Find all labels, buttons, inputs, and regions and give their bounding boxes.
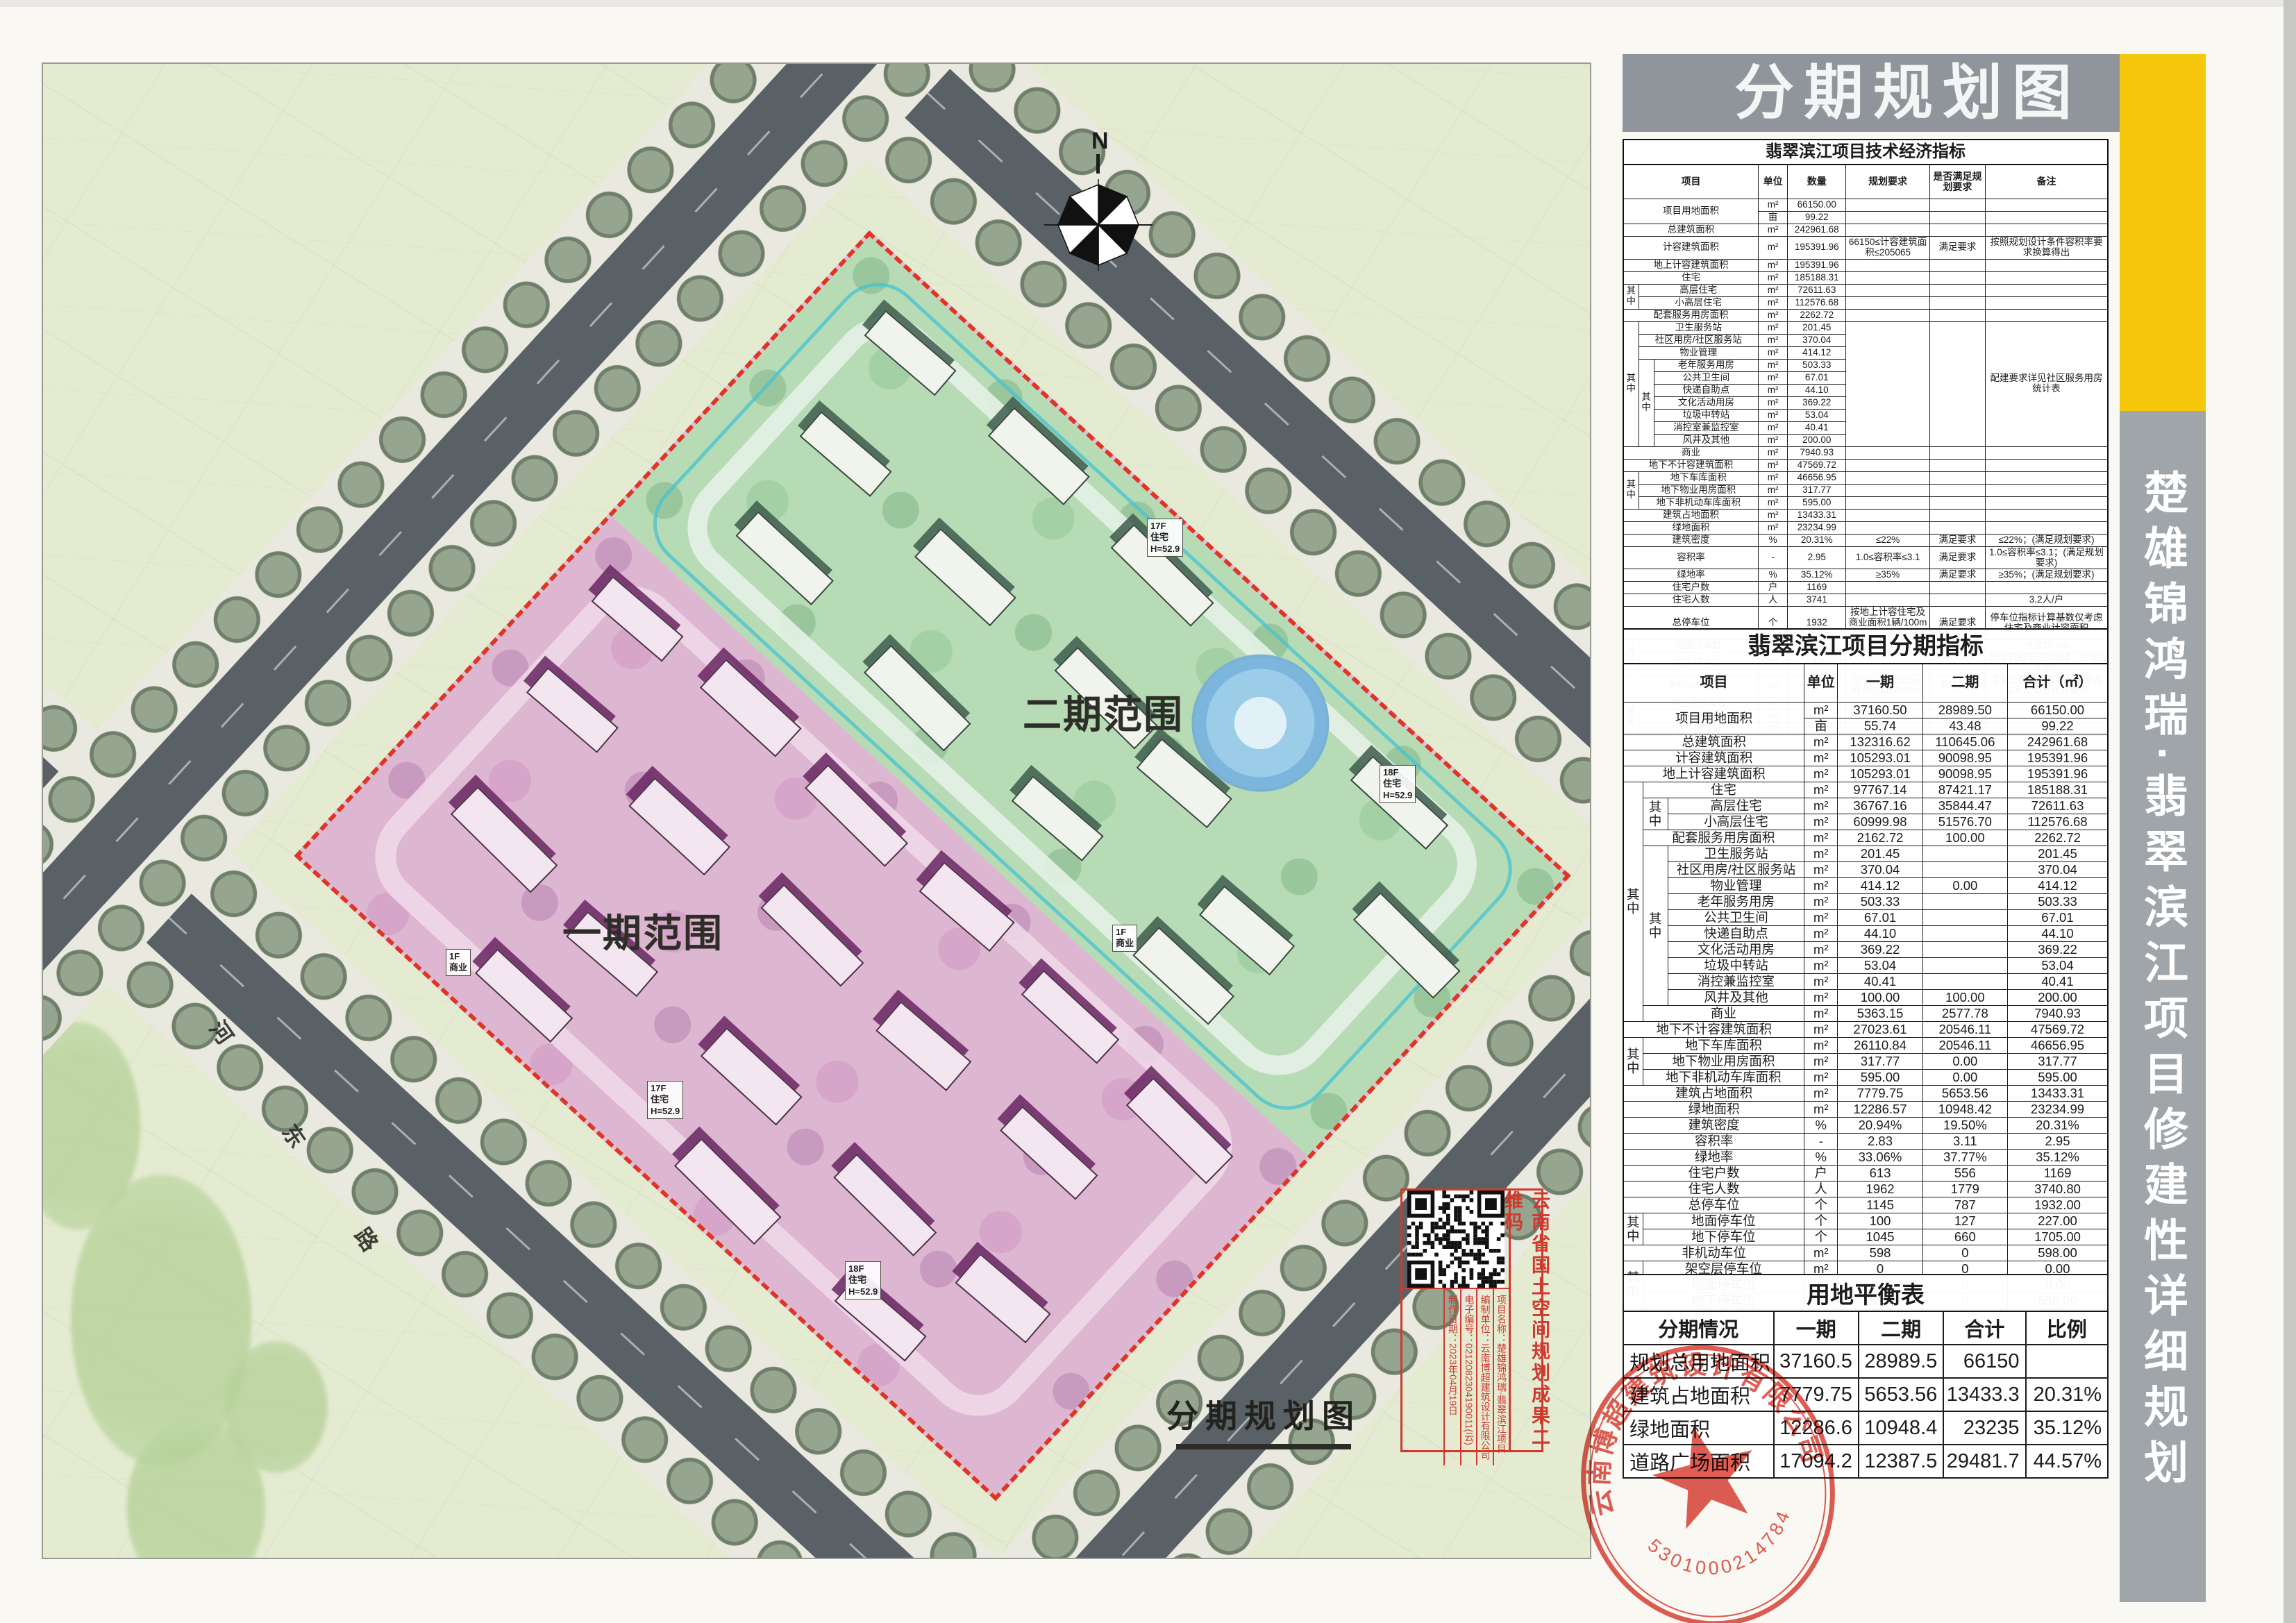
table-cell: 社区用房/社区服务站 (1639, 334, 1758, 346)
table-cell: 35.12% (2008, 1150, 2109, 1166)
table-cell (1929, 594, 1985, 607)
table-cell (1985, 296, 2108, 309)
table-cell: 配套服务用房面积 (1623, 309, 1759, 321)
table-cell: m² (1759, 484, 1788, 496)
table-cell: m² (1759, 309, 1788, 321)
table-cell: 1705.00 (2008, 1229, 2109, 1245)
table-cell: m² (1759, 421, 1788, 434)
table-cell: 个 (1804, 1229, 1838, 1245)
table-cell: 201.45 (1788, 321, 1846, 334)
phase2-label: 二期范围 (1023, 684, 1184, 740)
table-cell: m² (1759, 521, 1788, 534)
table-cell: 242961.68 (1788, 224, 1846, 237)
table-cell: m² (1759, 371, 1788, 384)
table-cell (1846, 296, 1929, 309)
table-cell: 7940.93 (1788, 446, 1846, 459)
table-cell: 配建要求详见社区服务用房统计表 (1985, 321, 2108, 446)
table-cell: m² (1804, 782, 1838, 798)
table-cell: 414.12 (1788, 346, 1846, 359)
table-cell: 数量 (1788, 165, 1846, 199)
table-cell: 660 (1922, 1229, 2007, 1245)
table-cell: 绿地面积 (1623, 1102, 1804, 1118)
qr-stamp-title: 云南省国土空间规划成果二维码 (1509, 1191, 1541, 1450)
table-cell: 195391.96 (2008, 750, 2109, 766)
table-cell: m² (1804, 878, 1838, 894)
table-cell: m² (1759, 446, 1788, 459)
table-cell: 绿地面积 (1623, 521, 1759, 534)
table-cell: m² (1759, 199, 1788, 212)
table-cell: 55.74 (1838, 718, 1922, 734)
page-title-bar: 分期规划图 (1623, 54, 2120, 132)
table-cell (1929, 509, 1985, 521)
building-label: 18F 住宅 H=52.9 (1380, 765, 1416, 803)
table-cell: 住宅 (1623, 271, 1759, 284)
table-cell (1846, 309, 1929, 321)
table-cell: m² (1804, 798, 1838, 814)
table-cell: 快递自助点 (1654, 384, 1758, 396)
table-cell (1846, 594, 1929, 607)
table-cell: 35844.47 (1922, 798, 2007, 814)
table-cell: 地面停车位 (1643, 1213, 1804, 1229)
table-cell: 53.04 (1788, 409, 1846, 421)
table-cell: 2162.72 (1838, 830, 1922, 846)
table-cell: ≥35%；(满足规划要求) (1985, 569, 2108, 582)
phasing-indicators-table: 翡翠滨江项目分期指标项目单位一期二期合计（㎡）项目用地面积m²37160.502… (1623, 628, 2109, 1310)
table-cell: 595.00 (2008, 1070, 2109, 1086)
table-cell (1846, 284, 1929, 296)
table-cell: 36767.16 (1838, 798, 1922, 814)
table-cell: m² (1759, 259, 1788, 271)
table-cell: 总建筑面积 (1623, 734, 1804, 750)
table-cell: 242961.68 (2008, 734, 2109, 750)
table-cell: m² (1759, 434, 1788, 446)
table-cell: 35.12% (1788, 569, 1846, 582)
table-cell: 185188.31 (1788, 271, 1846, 284)
table-cell: 满足要求 (1929, 237, 1985, 260)
table-cell: 112576.68 (2008, 814, 2109, 830)
qr-field-agency: 编制单位：云南博超建筑设计有限公司 (1476, 1289, 1492, 1465)
table-cell: 90098.95 (1922, 766, 2007, 782)
table-cell: 46656.95 (1788, 471, 1846, 484)
table-cell: m² (1804, 1070, 1838, 1086)
table-cell: 595.00 (1788, 496, 1846, 509)
table-cell: 23235 (1943, 1411, 2025, 1445)
table-cell: 小高层住宅 (1639, 296, 1758, 309)
table-cell: 物业管理 (1668, 878, 1804, 894)
table-cell: 40.41 (1788, 421, 1846, 434)
table-cell: 13433.31 (2008, 1086, 2109, 1102)
table-cell: 1145 (1838, 1197, 1922, 1213)
qr-stamp: 项目名称：楚雄锦鸿瑞·翡翠滨江项目 编制单位：云南博超建筑设计有限公司 电子编号… (1400, 1188, 1543, 1452)
table-cell: 住宅人数 (1623, 594, 1759, 607)
table-cell: 195391.96 (1788, 237, 1846, 260)
side-title-strip: 楚雄锦鸿瑞·翡翠滨江项目修建性详细规划 (2120, 411, 2206, 1602)
table-cell: 文化活动用房 (1668, 942, 1804, 958)
table-cell: 20.94% (1838, 1118, 1922, 1134)
table-cell: 地上计容建筑面积 (1623, 766, 1804, 782)
table-cell: 2.95 (2008, 1134, 2109, 1150)
table-cell (1985, 199, 2108, 212)
table-cell: m² (1804, 814, 1838, 830)
table-cell: m² (1804, 1022, 1838, 1038)
table-cell (1929, 496, 1985, 509)
table-cell: 90098.95 (1922, 750, 2007, 766)
table-cell: 项目 (1623, 664, 1804, 703)
table-cell: 项目用地面积 (1623, 703, 1804, 734)
table-cell (1846, 199, 1929, 212)
table-cell: 按照规划设计条件容积率要求换算得出 (1985, 237, 2108, 260)
table-cell: 66150≤计容建筑面积≤205065 (1846, 237, 1929, 260)
table-cell (1922, 926, 2007, 942)
table-cell (1922, 910, 2007, 926)
table-cell: 0 (1922, 1245, 2007, 1261)
table-cell: 13433.3 (1943, 1378, 2025, 1411)
table-cell: 7940.93 (2008, 1006, 2109, 1022)
table-cell (1846, 271, 1929, 284)
caption-underline (1176, 1444, 1351, 1449)
table-cell (1929, 199, 1985, 212)
table-cell: 地下物业用房面积 (1643, 1054, 1804, 1070)
table-cell (1985, 484, 2108, 496)
table-cell: 28989.50 (1922, 703, 2007, 718)
table-cell (1985, 471, 2108, 484)
table-cell: 规划要求 (1846, 165, 1929, 199)
table-cell: 文化活动用房 (1654, 396, 1758, 409)
table-cell: 44.10 (1838, 926, 1922, 942)
table-cell: m² (1804, 1006, 1838, 1022)
table-cell (1929, 446, 1985, 459)
table-cell: 满足要求 (1929, 569, 1985, 582)
table-cell: 物业管理 (1639, 346, 1758, 359)
table-cell: 44.10 (1788, 384, 1846, 396)
table-cell: m² (1804, 703, 1838, 718)
table-cell (1985, 582, 2108, 594)
table-cell (1985, 459, 2108, 471)
table-cell: 公共卫生间 (1654, 371, 1758, 384)
table-cell: 其中 (1639, 359, 1654, 446)
table-cell (1922, 958, 2007, 974)
table-cell (1846, 484, 1929, 496)
table-cell: 小高层住宅 (1668, 814, 1804, 830)
table-cell: 33.06% (1838, 1150, 1922, 1166)
table-cell: 计容建筑面积 (1623, 237, 1759, 260)
table-cell: 消控兼监控室 (1668, 974, 1804, 990)
table-cell: 19.50% (1922, 1118, 2007, 1134)
table-cell: 亩 (1804, 718, 1838, 734)
table-cell: ≤22%；(满足规划要求) (1985, 534, 2108, 546)
building-label: 1F 商业 (446, 949, 471, 976)
building-label: 1F 商业 (1112, 925, 1137, 952)
table-cell (1929, 271, 1985, 284)
park-green (224, 1341, 328, 1473)
table-cell: m² (1804, 862, 1838, 878)
table-cell: 317.77 (1788, 484, 1846, 496)
table-cell: 其中 (1643, 846, 1668, 1006)
table-cell: 87421.17 (1922, 782, 2007, 798)
table-cell: 26110.84 (1838, 1038, 1922, 1054)
table-cell: 10948.4 (1859, 1411, 1943, 1445)
table-cell: 132316.62 (1838, 734, 1922, 750)
table-cell: 100 (1838, 1213, 1922, 1229)
table-cell: ≤22% (1846, 534, 1929, 546)
north-label: N (1091, 128, 1109, 154)
table-cell: 卫生服务站 (1639, 321, 1758, 334)
qr-code (1402, 1191, 1509, 1289)
table-cell: m² (1759, 396, 1788, 409)
table-cell: 1169 (1788, 582, 1846, 594)
table-cell (1929, 309, 1985, 321)
table-cell: 风井及其他 (1668, 990, 1804, 1006)
table-cell (1929, 284, 1985, 296)
table-cell: 项目用地面积 (1623, 199, 1759, 224)
table-cell: 598 (1838, 1245, 1922, 1261)
table-cell: 1.0≤容积率≤3.1；(满足规划要求) (1985, 546, 2108, 569)
table-cell: 317.77 (1838, 1054, 1922, 1070)
table-cell: 高层住宅 (1639, 284, 1758, 296)
table-cell: m² (1804, 990, 1838, 1006)
table-cell: 369.22 (2008, 942, 2109, 958)
table-cell: m² (1759, 237, 1788, 260)
table-cell: 消控室兼监控室 (1654, 421, 1758, 434)
table-cell: m² (1804, 974, 1838, 990)
table-cell (1985, 284, 2108, 296)
table-cell: 其中 (1623, 471, 1639, 509)
table-cell: 35.12% (2026, 1411, 2108, 1445)
table-cell (1929, 321, 1985, 446)
table-cell: 容积率 (1623, 1134, 1804, 1150)
table-cell: 40.41 (1838, 974, 1922, 990)
table-cell: 0.00 (1922, 1070, 2007, 1086)
table-cell (1922, 846, 2007, 862)
table-cell (2026, 1345, 2108, 1378)
table-cell: 满足要求 (1929, 534, 1985, 546)
table-cell: 1779 (1922, 1181, 2007, 1197)
map-caption-text: 分期规划图 (1166, 1391, 1361, 1437)
table-cell: 3.2人/户 (1985, 594, 2108, 607)
qr-field-number: 电子编号：0212082304190011(云) (1460, 1289, 1476, 1465)
table-cell: 10948.42 (1922, 1102, 2007, 1118)
table-cell: m² (1804, 1038, 1838, 1054)
table-cell: 地下不计容建筑面积 (1623, 459, 1759, 471)
table-cell: 127 (1922, 1213, 2007, 1229)
table-cell: % (1804, 1118, 1838, 1134)
table-cell: 地下物业用房面积 (1639, 484, 1758, 496)
table-cell: m² (1804, 766, 1838, 782)
table-cell: m² (1804, 910, 1838, 926)
table-cell (1846, 321, 1929, 446)
table-cell: 12286.57 (1838, 1102, 1922, 1118)
table-cell: 67.01 (1838, 910, 1922, 926)
table-cell: 5653.56 (1922, 1086, 2007, 1102)
table-cell: 二期 (1922, 664, 2007, 703)
table-cell: 556 (1922, 1166, 2007, 1181)
table-cell: 53.04 (1838, 958, 1922, 974)
table-cell: 0.00 (1922, 878, 2007, 894)
table-cell (1929, 471, 1985, 484)
table-cell: 其中 (1623, 321, 1639, 446)
table-cell: 住宅户数 (1623, 582, 1759, 594)
table-cell: 5363.15 (1838, 1006, 1922, 1022)
building-label: 17F 住宅 H=52.9 (1147, 519, 1183, 557)
table-cell: 地下非机动车库面积 (1643, 1070, 1804, 1086)
table-cell: 地下非机动车库面积 (1639, 496, 1758, 509)
side-title: 楚雄锦鸿瑞·翡翠滨江项目修建性详细规划 (2131, 469, 2195, 1552)
table-cell: 一期 (1838, 664, 1922, 703)
table-cell: m² (1804, 734, 1838, 750)
table-cell: 其中 (1623, 1213, 1643, 1245)
table-cell: m² (1804, 1086, 1838, 1102)
table-cell: 建筑密度 (1623, 534, 1759, 546)
table-cell (1929, 521, 1985, 534)
table-cell (1922, 942, 2007, 958)
table-cell: 容积率 (1623, 546, 1759, 569)
table-cell: 个 (1804, 1197, 1838, 1213)
table-cell: 503.33 (1838, 894, 1922, 910)
table-cell: 满足要求 (1929, 546, 1985, 569)
table-cell: % (1759, 569, 1788, 582)
planning-sheet: N 一期范围 二期范围 河东路 分期规划图 (0, 0, 2296, 1623)
table-cell: m² (1804, 830, 1838, 846)
seal-star-icon (1643, 1414, 1767, 1534)
yellow-accent-strip (2120, 54, 2206, 411)
table-cell: 12387.5 (1859, 1445, 1943, 1478)
table-cell: 112576.68 (1788, 296, 1846, 309)
table-cell: 44.57% (2026, 1445, 2108, 1478)
table-cell (1922, 894, 2007, 910)
table-cell: 44.10 (2008, 926, 2109, 942)
table-cell: 翡翠滨江项目分期指标 (1623, 629, 2108, 664)
table-cell: 7779.75 (1838, 1086, 1922, 1102)
table-cell: 非机动车位 (1623, 1245, 1804, 1261)
table-cell: 47569.72 (2008, 1022, 2109, 1038)
table-cell: 317.77 (2008, 1054, 2109, 1070)
table-cell: m² (1804, 1245, 1838, 1261)
table-cell: 建筑占地面积 (1623, 509, 1759, 521)
table-cell: 人 (1759, 594, 1788, 607)
table-cell: 1962 (1838, 1181, 1922, 1197)
table-cell (1846, 509, 1929, 521)
table-cell: m² (1804, 926, 1838, 942)
table-cell: 垃圾中转站 (1654, 409, 1758, 421)
table-cell: 2.83 (1838, 1134, 1922, 1150)
table-cell: 绿地率 (1623, 1150, 1804, 1166)
table-cell: 369.22 (1788, 396, 1846, 409)
table-cell: m² (1759, 321, 1788, 334)
table-cell: 20.31% (1788, 534, 1846, 546)
table-cell (1929, 259, 1985, 271)
table-cell: 370.04 (1838, 862, 1922, 878)
table-cell (1929, 582, 1985, 594)
table-cell: 其中 (1623, 782, 1643, 1022)
table-cell: 29481.7 (1943, 1445, 2025, 1478)
table-cell: m² (1804, 750, 1838, 766)
table-cell: 个 (1804, 1213, 1838, 1229)
table-cell: 1932.00 (2008, 1197, 2109, 1213)
table-cell: 20546.11 (1922, 1022, 2007, 1038)
table-cell: 合计 (1943, 1311, 2025, 1345)
table-cell: m² (1804, 958, 1838, 974)
table-cell: 100.00 (1922, 830, 2007, 846)
table-cell (1985, 496, 2108, 509)
table-cell: 住宅户数 (1623, 1166, 1804, 1181)
table-cell: 66150.00 (2008, 703, 2109, 718)
table-cell: 13433.31 (1788, 509, 1846, 521)
table-cell: m² (1759, 334, 1788, 346)
table-cell: 1169 (2008, 1166, 2109, 1181)
table-cell: 其中 (1643, 798, 1668, 830)
scan-edge (2284, 0, 2296, 1623)
table-cell: 2262.72 (2008, 830, 2109, 846)
table-cell: 备注 (1985, 165, 2108, 199)
table-cell: 5653.56 (1859, 1378, 1943, 1411)
table-cell: 单位 (1759, 165, 1788, 199)
table-cell: 住宅 (1643, 782, 1804, 798)
table-cell: 53.04 (2008, 958, 2109, 974)
table-cell: m² (1804, 894, 1838, 910)
table-cell (1846, 582, 1929, 594)
table-cell: ≥35% (1846, 569, 1929, 582)
table-cell: 200.00 (2008, 990, 2109, 1006)
qr-fields: 项目名称：楚雄锦鸿瑞·翡翠滨江项目 编制单位：云南博超建筑设计有限公司 电子编号… (1402, 1289, 1509, 1465)
building-label: 18F 住宅 H=52.9 (845, 1261, 881, 1300)
table-cell: 72611.63 (2008, 798, 2109, 814)
table-cell: m² (1759, 471, 1788, 484)
table-cell: m² (1759, 346, 1788, 359)
table-cell: 67.01 (2008, 910, 2109, 926)
table-cell: m² (1759, 496, 1788, 509)
table-cell: 合计（㎡） (2008, 664, 2109, 703)
table-cell: 2577.78 (1922, 1006, 2007, 1022)
table-cell: 37160.50 (1838, 703, 1922, 718)
table-cell (1929, 296, 1985, 309)
table-cell: 503.33 (1788, 359, 1846, 371)
table-cell: % (1759, 534, 1788, 546)
svg-text:5301000214784: 5301000214784 (1641, 1502, 1806, 1595)
table-cell: 地下车库面积 (1639, 471, 1758, 484)
table-cell: 23234.99 (1788, 521, 1846, 534)
table-cell: m² (1759, 384, 1788, 396)
table-cell: 20.31% (2026, 1378, 2108, 1411)
table-cell: 27023.61 (1838, 1022, 1922, 1038)
table-cell: 用地平衡表 (1623, 1275, 2108, 1311)
table-cell: 43.48 (1922, 718, 2007, 734)
table-cell: 100.00 (1838, 990, 1922, 1006)
table-cell: 40.41 (2008, 974, 2109, 990)
table-cell: 快递自助点 (1668, 926, 1804, 942)
table-cell: 人 (1804, 1181, 1838, 1197)
table-cell (1846, 459, 1929, 471)
building-label: 17F 住宅 H=52.9 (647, 1081, 683, 1119)
table-cell: 社区用房/社区服务站 (1668, 862, 1804, 878)
table-cell: 高层住宅 (1668, 798, 1804, 814)
table-cell: 2.95 (1788, 546, 1846, 569)
table-cell: 195391.96 (1788, 259, 1846, 271)
seal-number: 5301000214784 (1641, 1502, 1806, 1595)
table-cell: 绿地率 (1623, 569, 1759, 582)
table-cell: 老年服务用房 (1654, 359, 1758, 371)
table-cell (1985, 271, 2108, 284)
table-cell: 项目 (1623, 165, 1759, 199)
table-cell: 370.04 (1788, 334, 1846, 346)
compass-icon: N (1043, 128, 1154, 294)
table-cell: 1045 (1838, 1229, 1922, 1245)
table-cell: 地上计容建筑面积 (1623, 259, 1759, 271)
table-cell (1985, 224, 2108, 237)
table-cell: 66150 (1943, 1345, 2025, 1378)
table-cell: 1.0≤容积率≤3.1 (1846, 546, 1929, 569)
table-cell: 垃圾中转站 (1668, 958, 1804, 974)
table-cell: 66150.00 (1788, 199, 1846, 212)
